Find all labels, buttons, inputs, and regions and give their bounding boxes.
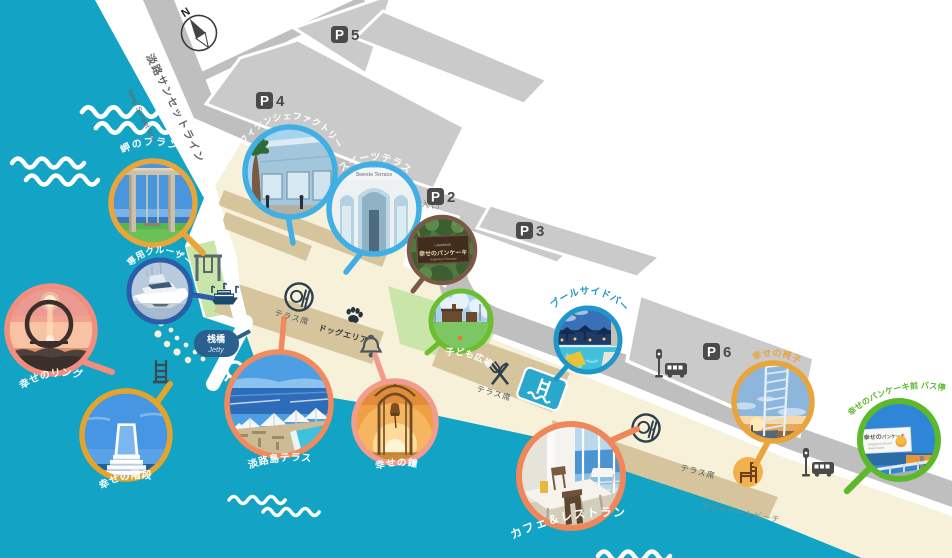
- svg-text:P: P: [431, 189, 440, 204]
- svg-text:2: 2: [447, 189, 455, 206]
- svg-text:4: 4: [276, 93, 285, 110]
- svg-text:Jetty: Jetty: [207, 345, 225, 354]
- svg-text:P: P: [260, 93, 269, 108]
- svg-text:Sweets Terrace: Sweets Terrace: [356, 172, 393, 178]
- svg-text:P: P: [520, 223, 529, 238]
- svg-text:6: 6: [723, 344, 731, 361]
- svg-text:5: 5: [351, 27, 359, 44]
- svg-text:Awaji Island: Awaji Island: [868, 446, 884, 451]
- svg-text:桟橋: 桟橋: [207, 333, 226, 344]
- svg-text:3: 3: [536, 223, 544, 240]
- svg-text:P: P: [707, 344, 716, 359]
- svg-text:P: P: [335, 27, 344, 42]
- svg-text:LAMARCHE: LAMARCHE: [434, 243, 451, 248]
